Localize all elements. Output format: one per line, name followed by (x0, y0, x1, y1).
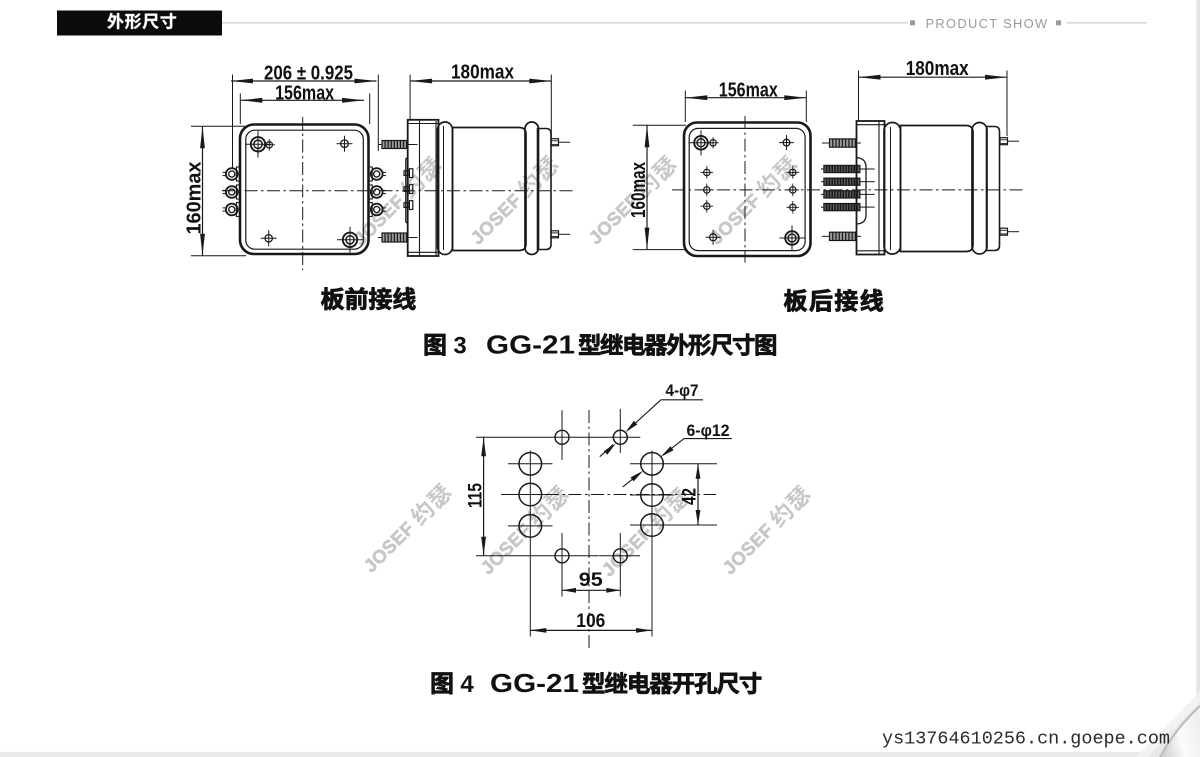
svg-text:JOSEF: JOSEF (705, 189, 764, 248)
svg-text:180max: 180max (451, 62, 514, 84)
svg-text:180max: 180max (906, 58, 969, 80)
svg-text:JOSEF: JOSEF (466, 189, 525, 248)
svg-text:95: 95 (579, 570, 603, 591)
svg-text:160max: 160max (628, 162, 650, 218)
svg-text:156max: 156max (275, 82, 334, 104)
svg-text:GG-21: GG-21 (486, 332, 575, 360)
svg-text:4: 4 (460, 671, 474, 698)
svg-text:3: 3 (453, 333, 466, 360)
svg-text:6-φ12: 6-φ12 (687, 422, 730, 440)
svg-text:156max: 156max (719, 79, 778, 101)
svg-text:106: 106 (576, 611, 605, 632)
svg-text:JOSEF: JOSEF (718, 519, 777, 578)
svg-text:115: 115 (466, 483, 487, 508)
svg-text:GG-21: GG-21 (490, 670, 579, 698)
svg-text:JOSEF: JOSEF (597, 521, 656, 580)
svg-text:JOSEF: JOSEF (359, 517, 418, 576)
svg-text:4-φ7: 4-φ7 (666, 382, 699, 400)
svg-text:PRODUCT SHOW: PRODUCT SHOW (926, 16, 1049, 31)
svg-text:160max: 160max (184, 162, 206, 235)
svg-text:JOSEF: JOSEF (476, 519, 535, 578)
svg-text:42: 42 (680, 488, 701, 505)
svg-text:206 ± 0.925: 206 ± 0.925 (264, 63, 353, 85)
svg-text:ys13764610256.cn.goepe.com: ys13764610256.cn.goepe.com (882, 729, 1170, 750)
